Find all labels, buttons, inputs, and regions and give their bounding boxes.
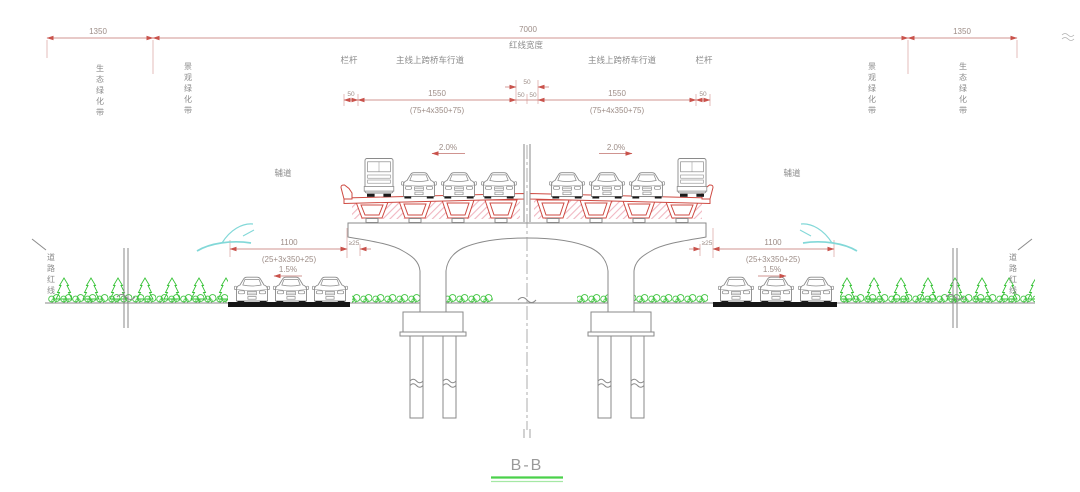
pile	[410, 336, 423, 418]
centerline	[518, 145, 536, 438]
dim-lane-left: 1550	[428, 89, 446, 98]
dim-median-total: 50	[523, 79, 531, 86]
dim-rail-right: 50	[699, 91, 707, 98]
car	[273, 277, 308, 303]
car	[481, 173, 516, 199]
pile-cap-right	[591, 312, 651, 332]
break-mark-top-right	[1062, 34, 1074, 41]
pile	[443, 336, 456, 418]
car	[234, 277, 269, 303]
pile-cap-right-plinth	[588, 332, 654, 336]
car	[798, 277, 833, 303]
bush-row-far-right	[840, 292, 1035, 303]
label-red-line-width: 红线宽度	[509, 40, 544, 50]
label-carriageway-left: 主线上跨桥车行道	[396, 55, 465, 65]
deck-crossfall-labels: 2.0% 2.0%	[432, 143, 632, 154]
flow-mark-left	[197, 224, 254, 251]
label-eco-belt-right: 生态绿化带	[959, 61, 968, 117]
parapet-left	[341, 185, 352, 199]
label-railing-left: 栏杆	[340, 55, 358, 65]
car	[441, 173, 476, 199]
dim-lane-left-detail: (75+4x350+75)	[410, 106, 465, 115]
crossfall-left-label: 2.0%	[439, 143, 457, 152]
crossfall-ground-left: 1.5%	[279, 265, 297, 274]
ground-dimension-right: ≥25 1100 (25+3x350+25) 1.5%	[689, 228, 834, 276]
bridge-cross-section-svg: 1350 7000 红线宽度 1350 生态绿化带 景观绿化带 栏杆 主线上跨桥…	[0, 0, 1080, 492]
car	[629, 173, 664, 199]
truck	[364, 159, 394, 197]
section-title: B-B	[511, 457, 544, 474]
ground-and-vegetation	[45, 277, 1035, 307]
dim-median-right: 50	[529, 92, 537, 99]
dim-median-left: 50	[517, 92, 525, 99]
car	[549, 173, 584, 199]
dim-gap-left: ≥25	[349, 240, 360, 247]
label-carriageway-right: 主线上跨桥车行道	[588, 55, 657, 65]
label-service-road-left: 辅道	[274, 168, 292, 178]
deck-dimension-row: 50 1550 50 50 50 1550 50 (75+4x350+75) (…	[344, 79, 710, 115]
truck	[677, 159, 707, 197]
crossfall-ground-right: 1.5%	[763, 265, 781, 274]
top-dimension-row: 1350 7000 红线宽度 1350	[47, 25, 1074, 74]
car	[718, 277, 753, 303]
pile-cap-left	[403, 312, 463, 332]
car	[589, 173, 624, 199]
label-service-road-right: 辅道	[783, 168, 801, 178]
bush-row-mid-right	[577, 292, 708, 303]
pile	[598, 336, 611, 418]
service-road-pavement-right	[713, 302, 837, 307]
dim-service-right-detail: (25+3x350+25)	[746, 255, 801, 264]
deck-vehicles	[364, 159, 707, 199]
ground-vehicles	[234, 277, 833, 303]
section-title-group: B-B	[491, 457, 563, 482]
dim-lane-right: 1550	[608, 89, 626, 98]
engineering-drawing: 1350 7000 红线宽度 1350 生态绿化带 景观绿化带 栏杆 主线上跨桥…	[0, 0, 1080, 492]
dim-red-line-width: 7000	[519, 25, 537, 34]
car	[312, 277, 347, 303]
dim-rail-left: 50	[347, 91, 355, 98]
crossfall-right-label: 2.0%	[607, 143, 625, 152]
dim-gap-right: ≥25	[702, 240, 713, 247]
leader-left	[32, 239, 46, 250]
dim-green-belt-left: 1350	[89, 27, 107, 36]
label-eco-belt-left: 生态绿化带	[96, 63, 105, 119]
dim-service-left: 1100	[280, 238, 298, 247]
dim-lane-right-detail: (75+4x350+75)	[590, 106, 645, 115]
service-road-pavement-left	[228, 302, 350, 307]
dim-green-belt-right: 1350	[953, 27, 971, 36]
label-railing-right: 栏杆	[695, 55, 713, 65]
bush-row-far-left	[48, 292, 228, 303]
dim-service-right: 1100	[764, 238, 782, 247]
leader-right	[1018, 239, 1032, 250]
pile	[631, 336, 644, 418]
car	[758, 277, 793, 303]
dim-service-left-detail: (25+3x350+25)	[262, 255, 317, 264]
label-landscape-belt-left: 景观绿化带	[184, 62, 193, 117]
pile-cap-left-plinth	[400, 332, 466, 336]
label-landscape-belt-right: 景观绿化带	[868, 62, 877, 117]
zone-labels: 生态绿化带 景观绿化带 栏杆 主线上跨桥车行道 主线上跨桥车行道 栏杆 景观绿化…	[96, 55, 968, 178]
car	[401, 173, 436, 199]
flow-mark-right	[800, 224, 857, 251]
label-road-red-line-right: 道路红线	[1009, 252, 1018, 297]
label-road-red-line-left: 道路红线	[47, 252, 56, 297]
